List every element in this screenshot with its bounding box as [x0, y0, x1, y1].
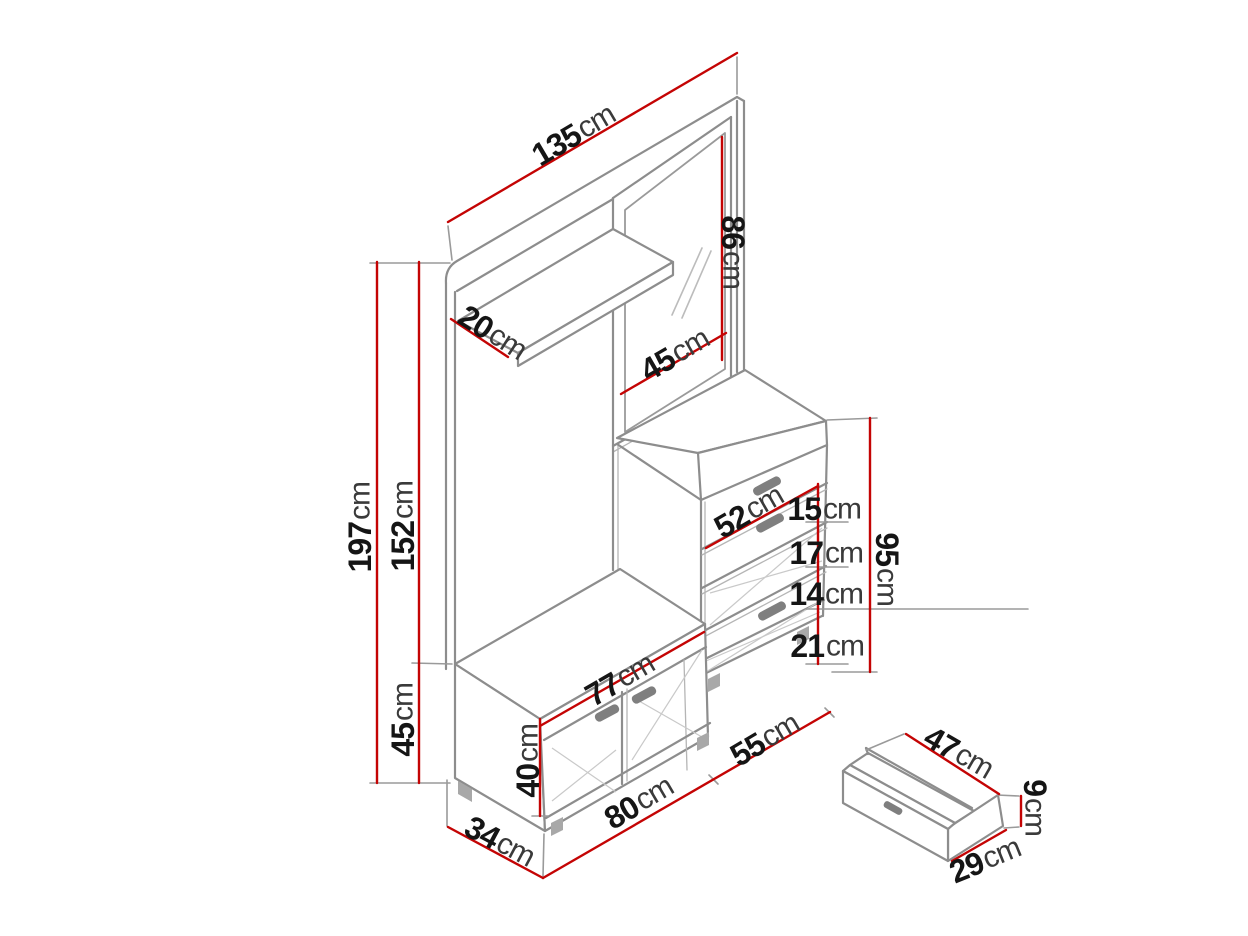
dim-value: 17: [789, 535, 823, 571]
dim-drawer-box-height: 9 cm: [1017, 779, 1053, 836]
dim-mirror-height: 86 cm: [715, 215, 751, 289]
dim-drawer3-height: 14 cm: [789, 576, 863, 612]
dim-drawer2-height: 17 cm: [789, 535, 863, 571]
dim-value: 9: [1017, 779, 1053, 796]
dim-width-total: 135 cm: [525, 96, 621, 173]
dim-unit: cm: [387, 683, 420, 721]
dim-unit: cm: [825, 578, 863, 611]
dim-unit: cm: [823, 493, 861, 526]
dim-bench-section-height: 45 cm: [385, 683, 421, 757]
dim-value: 15: [787, 491, 821, 527]
dim-bench-height: 40 cm: [510, 724, 546, 798]
dim-drawer4-height: 21 cm: [790, 628, 864, 664]
dim-value: 86: [715, 215, 751, 249]
dim-drawer1-height: 15 cm: [787, 491, 861, 527]
dim-value: 45: [385, 723, 421, 757]
dim-cabinet-front-width: 55 cm: [724, 705, 806, 773]
dim-value: 21: [790, 628, 824, 664]
drawer-handle: [757, 600, 788, 622]
dim-value: 197: [342, 522, 378, 573]
dim-height-panel: 152 cm: [385, 481, 421, 571]
divider-panel: [613, 446, 618, 570]
diagram-canvas: 135 cm 86 cm 20 cm 45 cm 197 cm 152 cm 4…: [0, 0, 1248, 936]
dim-unit: cm: [1019, 798, 1052, 836]
dim-height-total: 197 cm: [342, 482, 378, 572]
dim-value: 40: [510, 764, 546, 798]
dim-unit: cm: [344, 482, 377, 520]
dim-value: 14: [789, 576, 824, 612]
dim-unit: cm: [387, 481, 420, 519]
dim-unit: cm: [825, 537, 863, 570]
dim-value: 152: [385, 521, 421, 572]
cabinet-foot: [708, 673, 720, 692]
dim-value: 95: [869, 532, 905, 566]
dim-cabinet-height: 95 cm: [869, 532, 905, 606]
furniture-dimension-diagram: 135 cm 86 cm 20 cm 45 cm 197 cm 152 cm 4…: [0, 0, 1248, 936]
dim-unit: cm: [871, 568, 904, 606]
dim-unit: cm: [826, 630, 864, 663]
dim-drawer-box-width: 47 cm: [918, 719, 1000, 787]
dim-unit: cm: [717, 251, 750, 289]
dim-unit: cm: [512, 724, 545, 762]
